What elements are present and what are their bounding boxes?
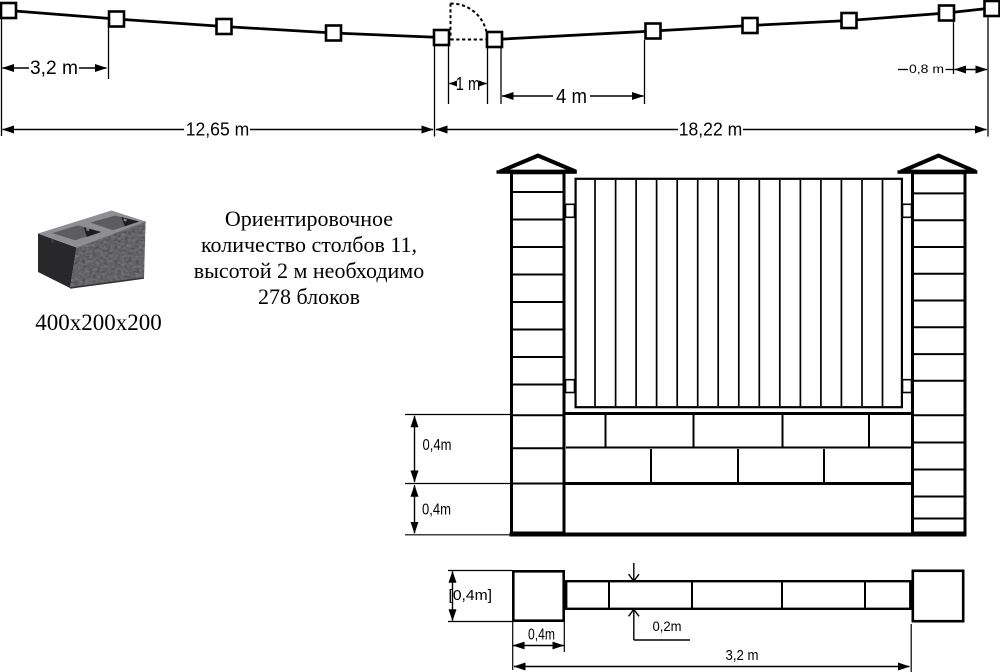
svg-text:3,2 m: 3,2 m xyxy=(726,647,759,664)
svg-text:400x200x200: 400x200x200 xyxy=(35,310,162,335)
svg-text:0,4m: 0,4m xyxy=(422,502,451,519)
svg-text:Ориентировочное: Ориентировочное xyxy=(225,206,393,231)
svg-text:1 m: 1 m xyxy=(456,74,481,94)
svg-text:[0,4m]: [0,4m] xyxy=(449,587,493,604)
svg-text:0,2m: 0,2m xyxy=(653,618,682,634)
svg-text:18,22 m: 18,22 m xyxy=(679,118,743,139)
svg-text:4 m: 4 m xyxy=(556,86,587,108)
svg-text:12,65 m: 12,65 m xyxy=(186,118,250,139)
svg-text:3,2 m: 3,2 m xyxy=(30,57,78,79)
svg-text:0,4m: 0,4m xyxy=(423,437,452,454)
svg-text:0,8 m: 0,8 m xyxy=(909,64,944,76)
svg-text:278 блоков: 278 блоков xyxy=(258,284,360,309)
svg-text:высотой 2 м необходимо: высотой 2 м необходимо xyxy=(194,258,424,283)
svg-text:0,4m: 0,4m xyxy=(528,627,555,644)
svg-text:количество столбов 11,: количество столбов 11, xyxy=(201,232,417,257)
